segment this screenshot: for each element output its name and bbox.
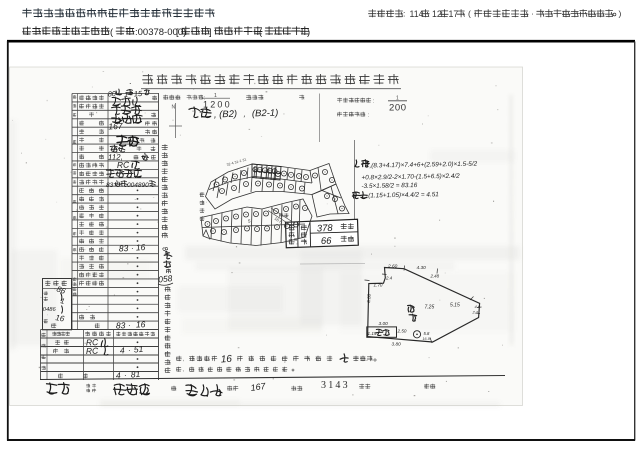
svg-text:16: 16 [220,354,232,366]
svg-text:RC: RC [117,160,130,170]
svg-text:81: 81 [130,369,140,380]
svg-text:·: · [128,321,131,330]
svg-text:4: 4 [120,345,126,355]
svg-text:,(1.15+1.05)×4.4/2 = 4.51: ,(1.15+1.05)×4.4/2 = 4.51 [366,191,439,199]
svg-text:4: 4 [116,370,122,380]
svg-text:17: 17 [449,9,459,19]
svg-text:51: 51 [133,344,143,355]
svg-text:15: 15 [134,89,144,99]
svg-text:378: 378 [317,223,334,235]
svg-text:83: 83 [116,320,126,330]
svg-text:RC: RC [86,346,99,356]
svg-text:3.80: 3.80 [392,341,402,347]
svg-text:·: · [131,244,134,253]
svg-text:.: . [129,76,132,86]
svg-text:(: ( [468,9,471,19]
svg-text:,: , [244,110,246,119]
svg-text:66: 66 [321,236,333,247]
svg-text:N: N [172,105,176,111]
svg-text:12: 12 [432,9,442,19]
svg-text:, (B2): , (B2) [214,109,238,121]
svg-text:200: 200 [389,103,407,114]
svg-text:·: · [128,346,131,355]
svg-text:·: · [531,9,534,19]
svg-text:16-9: 16-9 [423,337,430,341]
svg-text:1: 1 [396,96,399,102]
svg-text:1: 1 [214,93,217,99]
svg-text::: : [373,99,374,105]
svg-text:,: , [183,357,184,363]
svg-text:(: ( [110,26,114,37]
svg-text:058: 058 [158,273,173,284]
svg-text:1200: 1200 [203,100,232,110]
svg-text:3143: 3143 [321,380,350,391]
svg-text:167: 167 [108,121,123,132]
svg-text:004890: 004890 [127,182,149,189]
svg-text:S: S [294,237,297,242]
svg-text:16: 16 [136,242,146,252]
svg-text::: : [403,9,405,19]
svg-text:83: 83 [106,182,114,189]
svg-text:(B2-1): (B2-1) [252,108,279,120]
svg-text:,: , [183,367,184,373]
svg-text:·: · [124,371,127,380]
svg-text:16: 16 [136,319,146,329]
svg-text::: : [368,113,369,119]
svg-text:-3.5×1.58/2 = 83.16: -3.5×1.58/2 = 83.16 [361,182,417,190]
svg-text:83: 83 [119,243,129,253]
svg-text:): ) [619,9,622,19]
svg-text:): ) [307,26,310,37]
svg-text:]: ] [209,26,212,37]
svg-text:[: [ [176,26,179,37]
